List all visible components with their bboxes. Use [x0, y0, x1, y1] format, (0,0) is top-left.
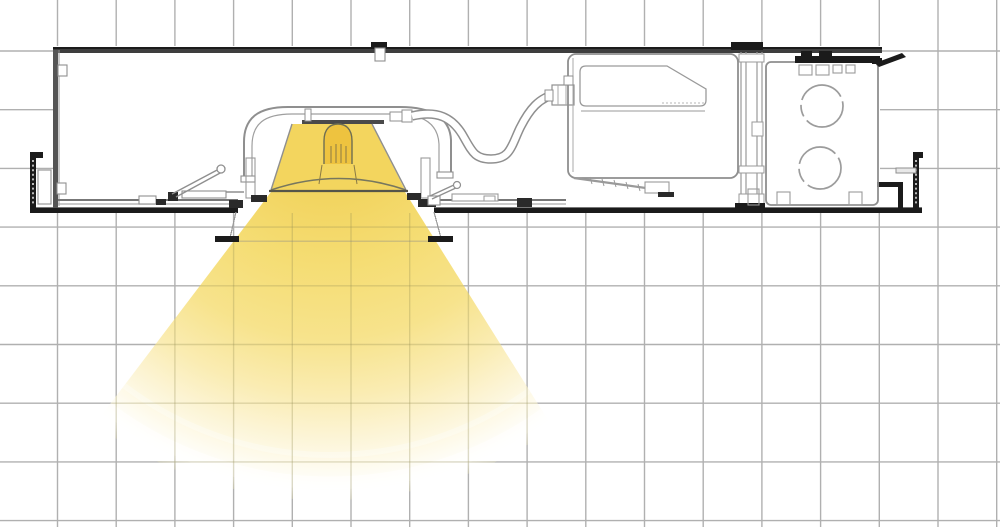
divider-foot — [735, 203, 765, 210]
divider-tie-top — [739, 54, 764, 62]
socket-bracket — [390, 112, 402, 121]
downlight-section-diagram — [0, 0, 1000, 527]
lamp-stub-left — [305, 109, 311, 121]
pan-tab — [484, 196, 495, 201]
hanger-bar-nub — [872, 58, 882, 64]
trim-corner-black — [251, 195, 267, 202]
pryout-tab — [819, 51, 832, 56]
wall-clip-upper — [58, 65, 67, 76]
hanger-end-cap — [913, 152, 923, 158]
arch-foot-left — [241, 176, 255, 182]
trim-flange-left — [215, 236, 239, 242]
ceiling-board-right — [434, 208, 922, 213]
divider-clip — [752, 122, 763, 136]
pan-clip — [517, 198, 532, 207]
spring-bar — [182, 191, 226, 198]
rail-right-bracket — [731, 42, 763, 50]
hanger-end-cap — [30, 152, 43, 158]
spring-tip — [454, 182, 461, 189]
spring-tip — [217, 165, 225, 173]
bracket-foot-black — [658, 192, 674, 197]
ceiling-top-edge-right — [434, 207, 922, 208]
connector-nut — [545, 90, 553, 101]
hanger-inner-bar — [898, 182, 903, 210]
hanger-bar-right-end — [877, 152, 923, 210]
trim-corner-foot — [229, 200, 243, 208]
divider-tie-bottom — [739, 194, 764, 204]
pryout-tab — [801, 51, 812, 56]
trim-corner-black — [407, 193, 421, 200]
lamp-capsule — [324, 124, 352, 164]
ceiling-line — [30, 207, 922, 242]
hanger-bar-left-end — [30, 152, 51, 210]
wall-clip-lower — [57, 183, 66, 194]
arch-foot-right — [437, 172, 453, 178]
compartment-clip — [564, 76, 573, 85]
bracket-foot — [645, 182, 669, 193]
hanger-bracket — [896, 168, 916, 173]
ceiling-cut-edge-right — [434, 212, 441, 238]
diagram-stage — [0, 0, 1000, 527]
socket-body — [402, 110, 412, 122]
rail-clip-hook — [375, 48, 385, 61]
spring-base — [428, 196, 440, 205]
trim-flange-right — [428, 236, 453, 242]
conduit-connector — [552, 85, 574, 105]
ceiling-board-left — [30, 208, 238, 213]
rail-clip — [371, 42, 387, 48]
hanger-bracket — [38, 170, 51, 204]
spring-foot — [156, 199, 166, 205]
junction-box-top-bar — [795, 56, 880, 63]
lamp-mount-plate — [302, 120, 384, 124]
spring-base — [139, 196, 156, 204]
divider-tie-mid — [739, 166, 764, 173]
ceiling-top-edge-left — [30, 207, 238, 208]
